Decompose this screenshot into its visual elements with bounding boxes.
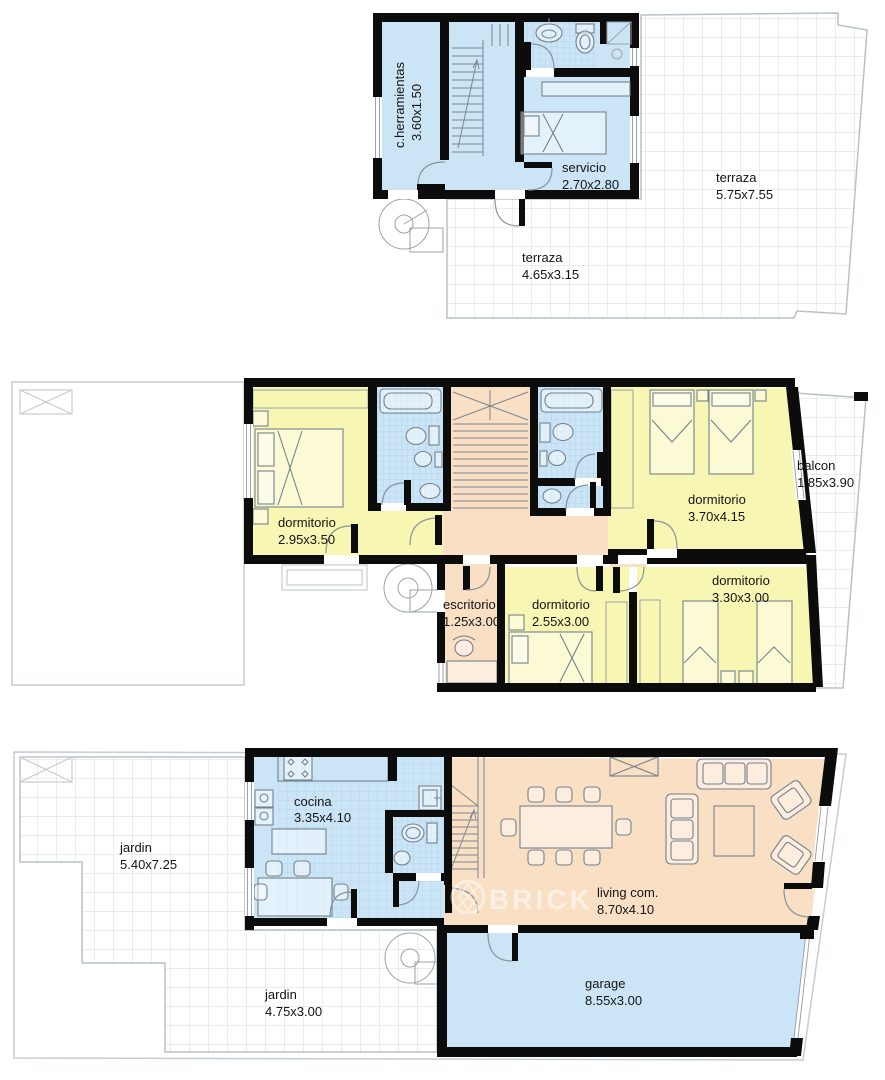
bedroom-2 bbox=[608, 386, 806, 553]
upper-floor-plan: c.herramientas 3.60x1.50 servicio 2.70x2… bbox=[373, 13, 867, 318]
room-label-dormitorio-4: dormitorio bbox=[532, 597, 590, 612]
room-dims-terraza-2: 4.65x3.15 bbox=[522, 267, 579, 282]
wall bbox=[600, 22, 607, 44]
bathtub-icon bbox=[541, 389, 602, 412]
bed-icon bbox=[521, 112, 606, 154]
spiral-stair-icon bbox=[384, 564, 440, 612]
wall bbox=[854, 392, 868, 401]
room-dims-jardin-1: 5.40x7.25 bbox=[120, 857, 177, 872]
room-label-jardin-1: jardin bbox=[119, 840, 152, 855]
eave-outline bbox=[282, 565, 367, 590]
wall bbox=[515, 22, 524, 68]
sink-icon bbox=[394, 851, 410, 865]
room-label-dormitorio-1: dormitorio bbox=[278, 515, 336, 530]
island-counter bbox=[272, 829, 326, 854]
room-label-garage: garage bbox=[585, 976, 625, 991]
wall bbox=[440, 22, 449, 160]
room-label-jardin-2: jardin bbox=[264, 987, 297, 1002]
bidet-icon bbox=[540, 451, 566, 467]
kitchen-sink-icon bbox=[255, 790, 273, 825]
sink-icon bbox=[420, 484, 440, 499]
floor-plan-image: c.herramientas 3.60x1.50 servicio 2.70x2… bbox=[0, 0, 885, 1080]
room-dims-dormitorio-1: 2.95x3.50 bbox=[278, 532, 335, 547]
room-label-escritorio: escritorio bbox=[443, 597, 496, 612]
lot-outline bbox=[12, 382, 244, 685]
room-dims-cocina: 3.35x4.10 bbox=[294, 810, 351, 825]
shelf-icon bbox=[542, 82, 630, 96]
room-dims-garage: 8.55x3.00 bbox=[585, 993, 642, 1008]
room-dims-balcon: 1.85x3.90 bbox=[797, 475, 854, 490]
room-label-living: living com. bbox=[597, 885, 658, 900]
bedroom-floor-plan: dormitorio 2.95x3.50 dormitorio 3.70x4.1… bbox=[12, 378, 868, 692]
toilet-icon bbox=[576, 24, 594, 53]
bidet-icon bbox=[415, 452, 443, 468]
sofa-icon bbox=[697, 759, 771, 789]
bathtub-icon bbox=[380, 389, 441, 413]
room-dims-dormitorio-2: 3.70x4.15 bbox=[688, 509, 745, 524]
garage bbox=[447, 933, 806, 1047]
stove-icon bbox=[284, 756, 312, 780]
room-label-terraza-1: terraza bbox=[716, 170, 757, 185]
room-label-cocina: cocina bbox=[294, 794, 332, 809]
room-dims-dormitorio-4: 2.55x3.00 bbox=[532, 614, 589, 629]
sink-icon bbox=[543, 489, 561, 503]
room-dims-dormitorio-3: 3.30x3.00 bbox=[712, 590, 769, 605]
room-dims-herramientas: 3.60x1.50 bbox=[409, 84, 424, 141]
room-dims-escritorio: 1.25x3.00 bbox=[443, 614, 500, 629]
room-label-servicio: servicio bbox=[562, 160, 606, 175]
room-dims-jardin-2: 4.75x3.00 bbox=[265, 1004, 322, 1019]
room-dims-living: 8.70x4.10 bbox=[597, 902, 654, 917]
room-dims-terraza-1: 5.75x7.55 bbox=[716, 187, 773, 202]
ground-floor-plan: BRICK jardin 5.40x7.25 cocina 3.35x4.10 … bbox=[14, 748, 846, 1060]
room-dims-servicio: 2.70x2.80 bbox=[562, 177, 619, 192]
watermark-text: BRICK bbox=[489, 884, 593, 915]
room-label-terraza-2: terraza bbox=[522, 250, 563, 265]
floor-plan-svg: c.herramientas 3.60x1.50 servicio 2.70x2… bbox=[0, 0, 885, 1080]
room-label-dormitorio-2: dormitorio bbox=[688, 492, 746, 507]
toilet-icon bbox=[402, 823, 437, 843]
sofa-icon bbox=[666, 794, 698, 864]
kitchen-tiles bbox=[397, 757, 444, 780]
room-label-balcon: balcon bbox=[797, 458, 835, 473]
room-label-dormitorio-3: dormitorio bbox=[712, 573, 770, 588]
room-label-herramientas: c.herramientas bbox=[392, 62, 407, 148]
spiral-stair-icon bbox=[379, 199, 443, 252]
utility-sink-icon bbox=[419, 786, 441, 810]
